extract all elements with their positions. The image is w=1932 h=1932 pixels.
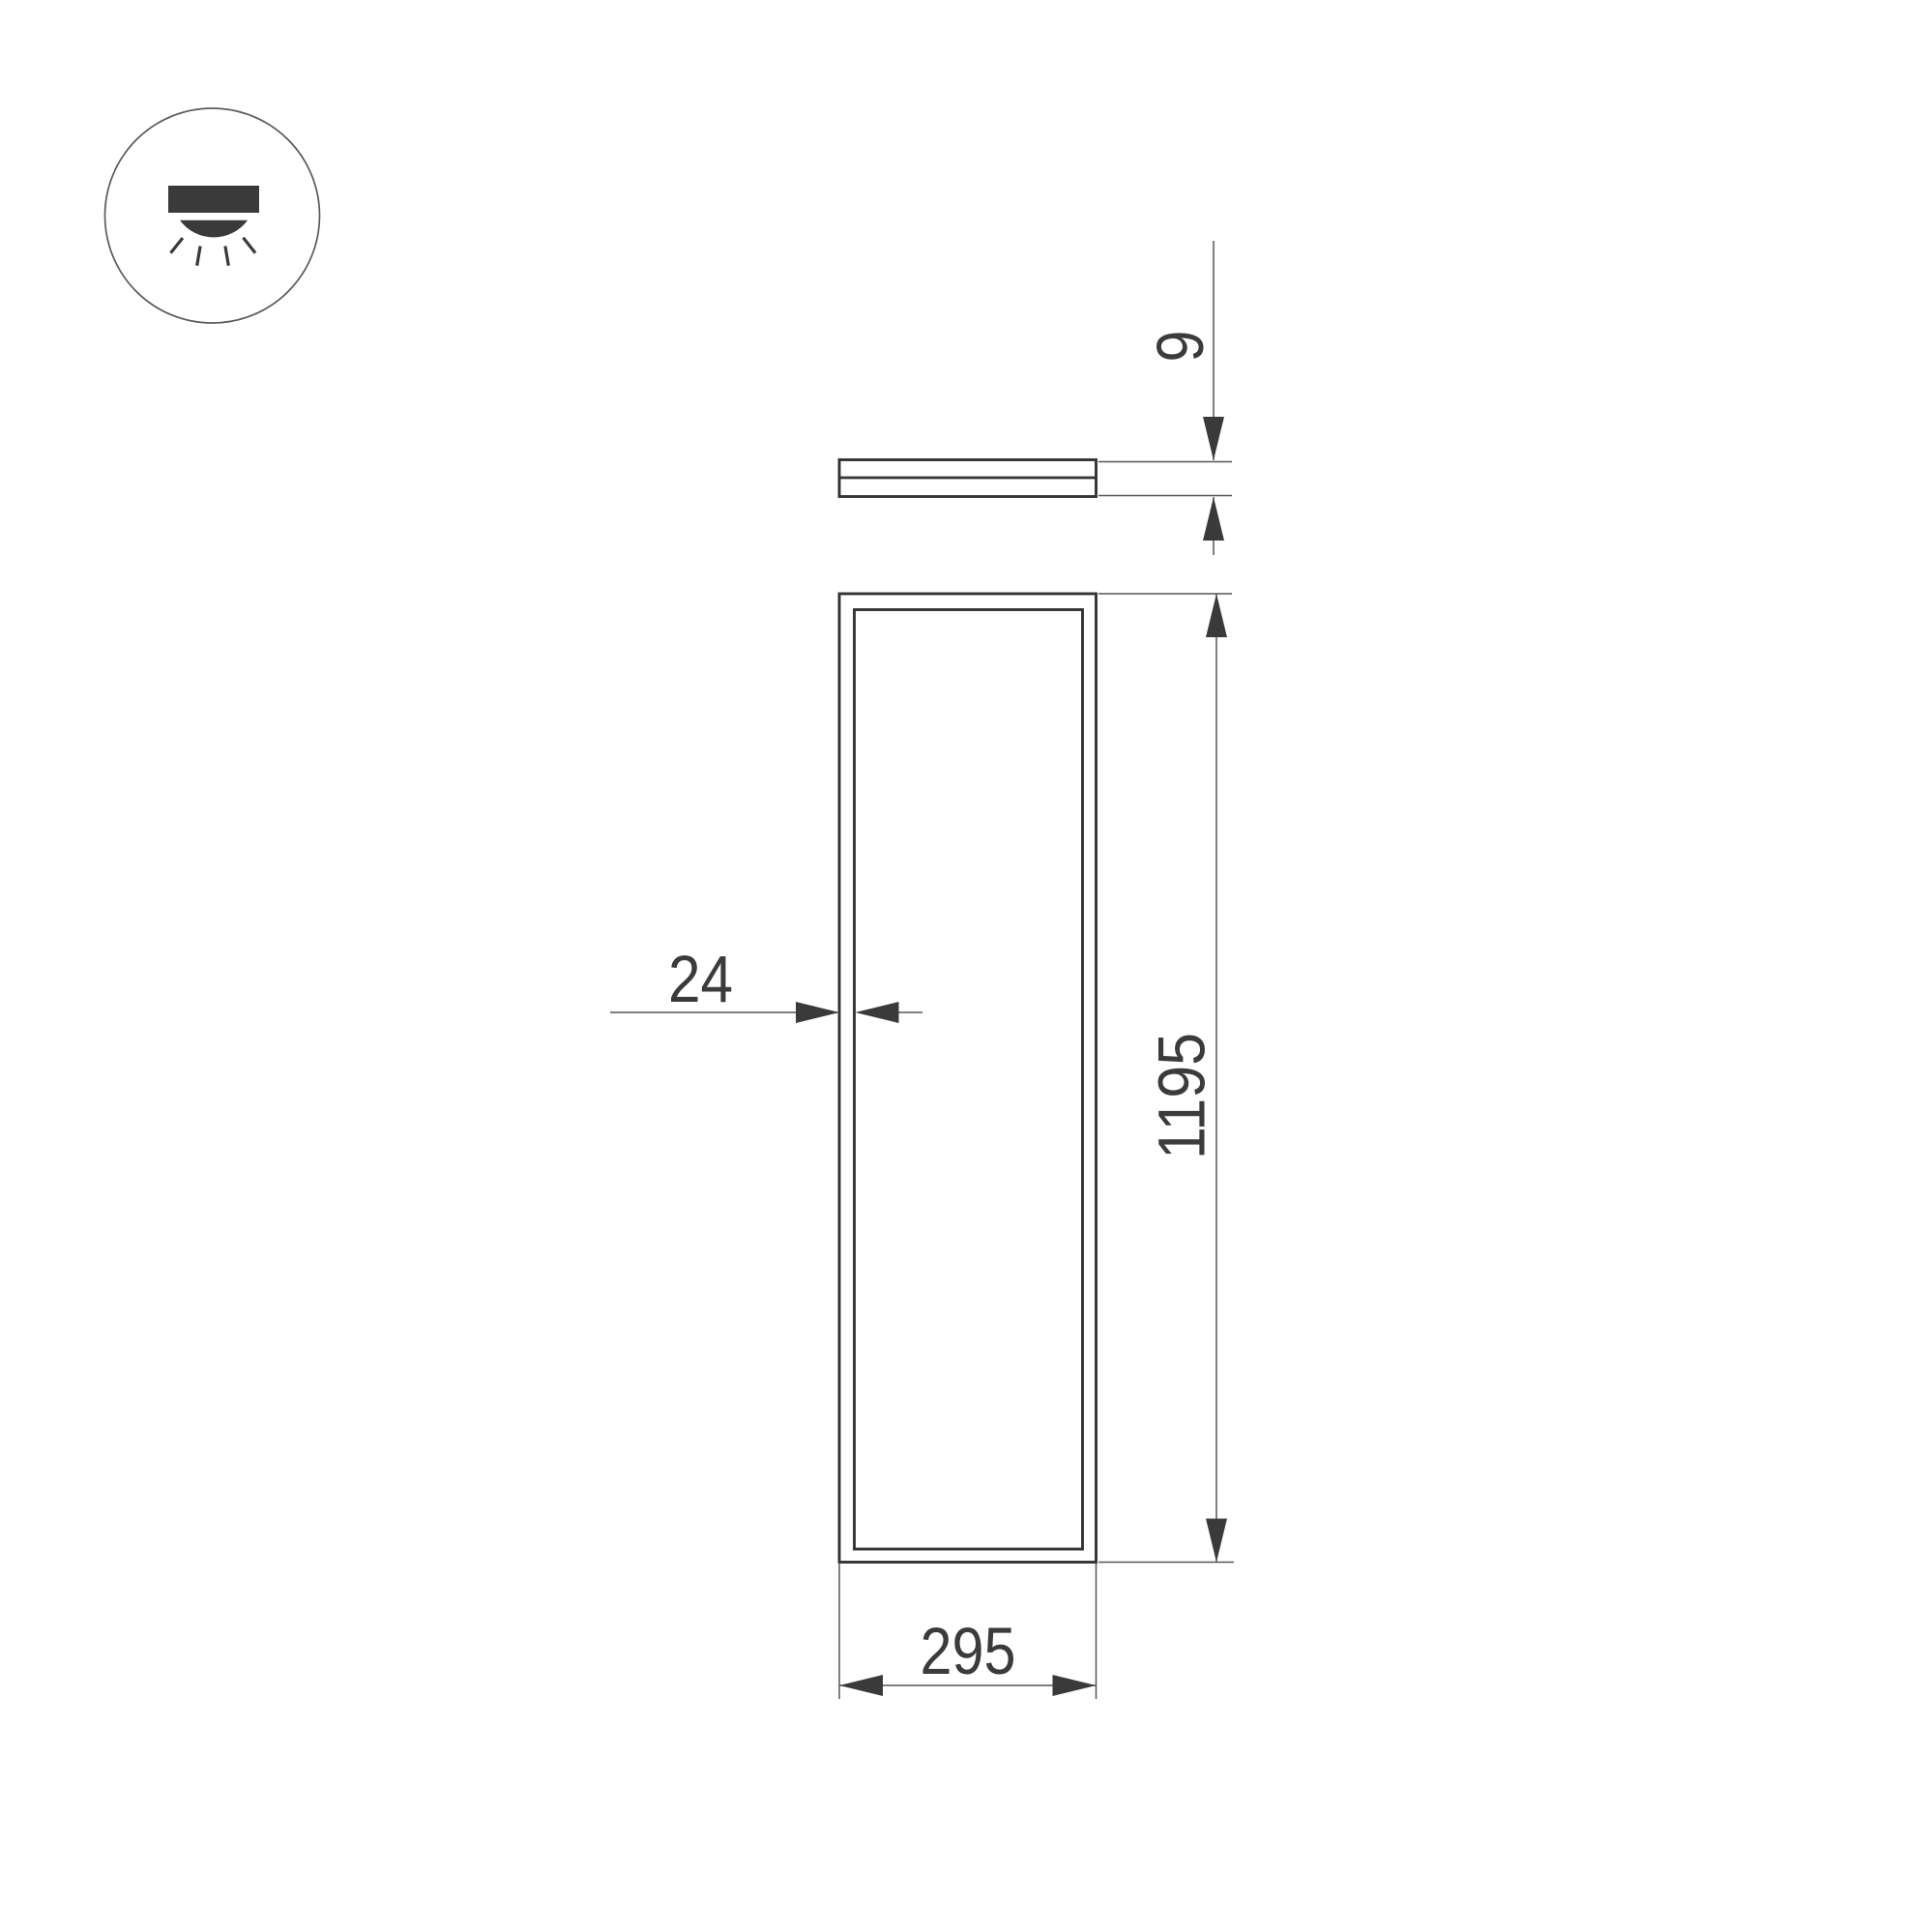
svg-text:1195: 1195 (1145, 1033, 1219, 1159)
svg-text:9: 9 (1143, 331, 1217, 363)
svg-text:24: 24 (668, 942, 733, 1016)
svg-text:295: 295 (921, 1614, 1016, 1688)
